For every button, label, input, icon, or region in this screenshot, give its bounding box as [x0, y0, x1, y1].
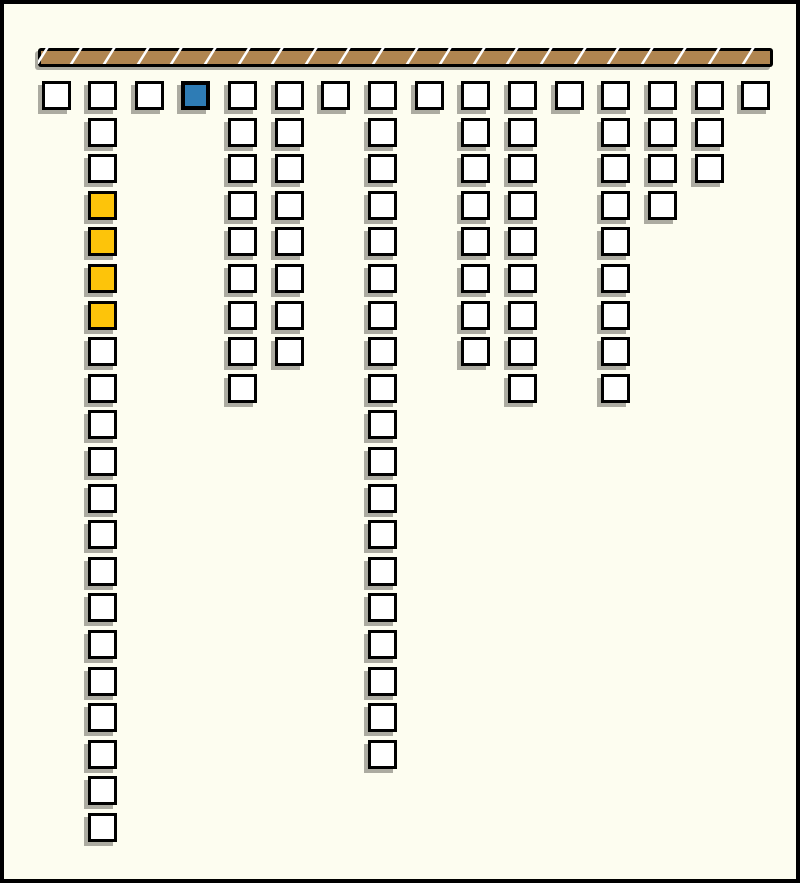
grid-cell[interactable]: [88, 520, 117, 549]
beam-hatch-divider: [640, 47, 654, 64]
grid-cell[interactable]: [461, 118, 490, 147]
grid-cell[interactable]: [601, 374, 630, 403]
beam-hatch-divider: [506, 47, 520, 64]
grid-cell[interactable]: [601, 337, 630, 366]
beam-hatch-divider: [304, 47, 318, 64]
beam-hatch-divider: [708, 47, 722, 64]
grid-cell[interactable]: [275, 81, 304, 110]
grid-cell[interactable]: [415, 81, 444, 110]
grid-cell[interactable]: [88, 703, 117, 732]
grid-cell[interactable]: [368, 81, 397, 110]
beam-hatch-divider: [204, 47, 218, 64]
grid-cell[interactable]: [508, 374, 537, 403]
grid-cell[interactable]: [321, 81, 350, 110]
grid-cell[interactable]: [368, 191, 397, 220]
grid-cell[interactable]: [508, 301, 537, 330]
beam-hatch-divider: [103, 47, 117, 64]
grid-cell[interactable]: [88, 337, 117, 366]
grid-cell[interactable]: [601, 227, 630, 256]
grid-cell[interactable]: [508, 337, 537, 366]
grid-cell[interactable]: [42, 81, 71, 110]
grid-cell[interactable]: [368, 447, 397, 476]
grid-cell[interactable]: [648, 81, 677, 110]
grid-cell[interactable]: [228, 118, 257, 147]
beam-hatch-divider: [136, 47, 150, 64]
grid-cell[interactable]: [275, 301, 304, 330]
grid-cell[interactable]: [368, 593, 397, 622]
grid-cell[interactable]: [461, 227, 490, 256]
grid-cell[interactable]: [601, 191, 630, 220]
diagram-canvas: [0, 0, 800, 883]
highlighted-cell[interactable]: [88, 301, 117, 330]
grid-cell[interactable]: [508, 191, 537, 220]
grid-cell[interactable]: [368, 154, 397, 183]
grid-cell[interactable]: [368, 630, 397, 659]
grid-cell[interactable]: [368, 301, 397, 330]
beam-hatch-divider: [674, 47, 688, 64]
beam-hatch-divider: [170, 47, 184, 64]
beam-hatch-divider: [405, 47, 419, 64]
grid-cell[interactable]: [88, 557, 117, 586]
grid-cell[interactable]: [508, 81, 537, 110]
grid-cell[interactable]: [275, 118, 304, 147]
highlighted-cell[interactable]: [88, 191, 117, 220]
grid-cell[interactable]: [648, 118, 677, 147]
grid-cell[interactable]: [601, 264, 630, 293]
grid-cell[interactable]: [88, 484, 117, 513]
grid-cell[interactable]: [508, 264, 537, 293]
beam-hatch-divider: [69, 47, 83, 64]
grid-cell[interactable]: [695, 81, 724, 110]
grid-cell[interactable]: [88, 667, 117, 696]
grid-cell[interactable]: [88, 118, 117, 147]
grid-cell[interactable]: [88, 154, 117, 183]
grid-cell[interactable]: [368, 264, 397, 293]
grid-cell[interactable]: [135, 81, 164, 110]
grid-cell[interactable]: [88, 410, 117, 439]
grid-cell[interactable]: [275, 191, 304, 220]
grid-cell[interactable]: [88, 776, 117, 805]
grid-cell[interactable]: [461, 154, 490, 183]
grid-cell[interactable]: [368, 557, 397, 586]
grid-cell[interactable]: [228, 81, 257, 110]
beam-hatch-divider: [439, 47, 453, 64]
grid-cell[interactable]: [275, 264, 304, 293]
grid-cell[interactable]: [461, 337, 490, 366]
grid-cell[interactable]: [461, 301, 490, 330]
grid-cell[interactable]: [368, 520, 397, 549]
grid-cell[interactable]: [88, 81, 117, 110]
grid-cell[interactable]: [508, 118, 537, 147]
grid-cell[interactable]: [368, 227, 397, 256]
grid-cell[interactable]: [695, 154, 724, 183]
grid-cell[interactable]: [275, 337, 304, 366]
grid-cell[interactable]: [88, 740, 117, 769]
grid-cell[interactable]: [601, 154, 630, 183]
beam-hatch-divider: [741, 47, 755, 64]
grid-cell[interactable]: [368, 667, 397, 696]
grid-cell[interactable]: [88, 447, 117, 476]
grid-cell[interactable]: [368, 703, 397, 732]
grid-cell[interactable]: [88, 813, 117, 842]
beam-hatch-divider: [338, 47, 352, 64]
grid-cell[interactable]: [601, 301, 630, 330]
beam-hatch-pattern: [38, 47, 773, 64]
grid-cell[interactable]: [275, 154, 304, 183]
grid-cell[interactable]: [88, 593, 117, 622]
selected-cell[interactable]: [181, 81, 210, 110]
grid-cell[interactable]: [275, 227, 304, 256]
beam-hatch-divider: [237, 47, 251, 64]
grid-cell[interactable]: [461, 191, 490, 220]
grid-cell[interactable]: [228, 337, 257, 366]
grid-cell[interactable]: [695, 118, 724, 147]
grid-cell[interactable]: [228, 374, 257, 403]
grid-cell[interactable]: [648, 191, 677, 220]
grid-cell[interactable]: [368, 337, 397, 366]
grid-cell[interactable]: [228, 301, 257, 330]
beam-hatch-divider: [607, 47, 621, 64]
grid-cell[interactable]: [228, 264, 257, 293]
grid-cell[interactable]: [648, 154, 677, 183]
beam-hatch-divider: [271, 47, 285, 64]
highlighted-cell[interactable]: [88, 264, 117, 293]
grid-cell[interactable]: [228, 154, 257, 183]
beam-hatch-divider: [38, 47, 49, 64]
grid-cell[interactable]: [601, 118, 630, 147]
beam-hatch-divider: [573, 47, 587, 64]
hatched-beam: [38, 48, 773, 67]
grid-cell[interactable]: [368, 484, 397, 513]
grid-cell[interactable]: [228, 227, 257, 256]
grid-cell[interactable]: [368, 118, 397, 147]
grid-cell[interactable]: [741, 81, 770, 110]
grid-cell[interactable]: [508, 227, 537, 256]
grid-cell[interactable]: [601, 81, 630, 110]
beam-hatch-divider: [372, 47, 386, 64]
grid-cell[interactable]: [228, 191, 257, 220]
grid-cell[interactable]: [461, 81, 490, 110]
beam-hatch-divider: [540, 47, 554, 64]
beam-hatch-divider: [472, 47, 486, 64]
grid-cell[interactable]: [461, 264, 490, 293]
grid-cell[interactable]: [555, 81, 584, 110]
grid-cell[interactable]: [368, 410, 397, 439]
highlighted-cell[interactable]: [88, 227, 117, 256]
grid-cell[interactable]: [368, 374, 397, 403]
grid-cell[interactable]: [368, 740, 397, 769]
grid-cell[interactable]: [88, 374, 117, 403]
grid-cell[interactable]: [88, 630, 117, 659]
grid-cell[interactable]: [508, 154, 537, 183]
